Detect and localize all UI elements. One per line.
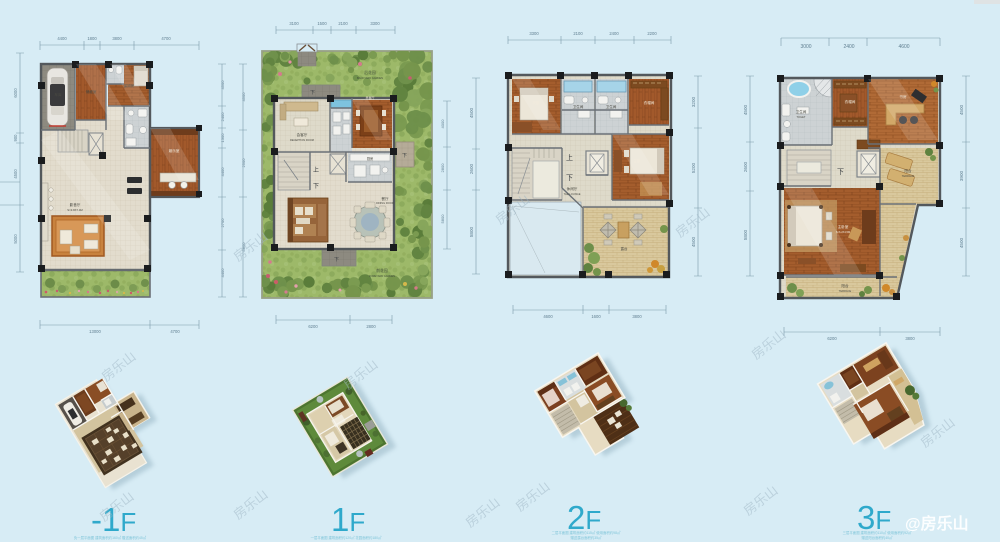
svg-text:4500: 4500 <box>469 107 474 118</box>
svg-text:5800: 5800 <box>469 226 474 237</box>
svg-text:900: 900 <box>13 134 18 142</box>
svg-text:4600: 4600 <box>543 314 553 319</box>
svg-text:4500: 4500 <box>691 236 696 247</box>
svg-text:上: 上 <box>313 166 319 174</box>
svg-text:下: 下 <box>334 257 339 263</box>
svg-text:3900: 3900 <box>959 170 964 181</box>
svg-text:1800: 1800 <box>87 36 97 41</box>
svg-text:下: 下 <box>313 183 319 190</box>
svg-text:3800: 3800 <box>905 336 915 341</box>
svg-text:4500: 4500 <box>220 80 225 90</box>
svg-text:主卧室: 主卧室 <box>838 224 849 229</box>
svg-text:5800: 5800 <box>440 214 445 224</box>
svg-text:3300: 3300 <box>529 31 539 36</box>
svg-text:下: 下 <box>837 168 844 176</box>
svg-text:1F: 1F <box>331 501 365 538</box>
svg-text:2200: 2200 <box>647 31 657 36</box>
svg-text:2400: 2400 <box>220 112 225 122</box>
svg-text:13000: 13000 <box>89 329 101 334</box>
svg-text:TERRACE: TERRACE <box>839 289 852 293</box>
svg-text:二层平面图 建筑面积约115㎡ 使用面积约98㎡: 二层平面图 建筑面积约115㎡ 使用面积约98㎡ <box>552 530 621 535</box>
svg-text:4000: 4000 <box>440 119 445 129</box>
svg-text:DINING ROOM: DINING ROOM <box>376 201 394 205</box>
svg-text:1500: 1500 <box>317 21 327 26</box>
svg-text:2800: 2800 <box>440 163 445 173</box>
svg-text:3300: 3300 <box>370 21 380 26</box>
svg-text:卫生间: 卫生间 <box>796 109 807 114</box>
svg-text:TERRACE: TERRACE <box>902 174 915 178</box>
svg-text:阳台: 阳台 <box>841 283 849 288</box>
svg-text:3800: 3800 <box>632 314 642 319</box>
svg-text:负一层平面图 建筑面积约160㎡ 赠送面积约45㎡: 负一层平面图 建筑面积约160㎡ 赠送面积约45㎡ <box>74 535 147 540</box>
svg-text:FOREYARD GARDEN: FOREYARD GARDEN <box>369 274 395 278</box>
svg-text:@房乐山: @房乐山 <box>905 514 969 533</box>
svg-text:THE LOUNGE: THE LOUNGE <box>564 192 581 196</box>
svg-text:BACKYARD GARDEN: BACKYARD GARDEN <box>357 76 383 80</box>
svg-text:5200: 5200 <box>691 162 696 173</box>
svg-text:车库: 车库 <box>54 92 62 97</box>
svg-text:前花园: 前花园 <box>376 268 388 273</box>
svg-text:TOILET: TOILET <box>796 115 805 119</box>
svg-text:2600: 2600 <box>469 163 474 174</box>
svg-text:6200: 6200 <box>827 336 837 341</box>
svg-text:2100: 2100 <box>338 21 348 26</box>
svg-text:2700: 2700 <box>220 218 225 228</box>
svg-text:6200: 6200 <box>308 324 318 329</box>
svg-text:4400: 4400 <box>220 268 225 278</box>
svg-text:4500: 4500 <box>241 92 246 102</box>
svg-text:4700: 4700 <box>170 329 180 334</box>
svg-text:3100: 3100 <box>289 21 299 26</box>
svg-text:上: 上 <box>566 153 573 162</box>
svg-text:3800: 3800 <box>112 36 122 41</box>
svg-text:下: 下 <box>310 90 315 96</box>
svg-text:露台: 露台 <box>621 246 628 251</box>
svg-text:三层平面图 建筑面积约110㎡ 使用面积约92㎡: 三层平面图 建筑面积约110㎡ 使用面积约92㎡ <box>843 530 912 535</box>
svg-text:1600: 1600 <box>591 314 601 319</box>
svg-text:3000: 3000 <box>800 44 811 50</box>
svg-text:赠送阳台面积约40㎡: 赠送阳台面积约40㎡ <box>862 535 894 540</box>
svg-text:3200: 3200 <box>691 96 696 107</box>
svg-text:5000: 5000 <box>13 234 18 244</box>
svg-text:卫生间: 卫生间 <box>606 104 617 109</box>
svg-text:RECEPTION ROOM: RECEPTION ROOM <box>290 138 314 142</box>
svg-text:4500: 4500 <box>743 104 748 115</box>
svg-text:4400: 4400 <box>57 36 67 41</box>
svg-text:休闲厅: 休闲厅 <box>567 186 578 191</box>
svg-text:2500: 2500 <box>241 158 246 168</box>
svg-text:2400: 2400 <box>843 44 854 50</box>
svg-text:6000: 6000 <box>13 88 18 98</box>
svg-text:阳台: 阳台 <box>904 168 912 173</box>
svg-text:2400: 2400 <box>609 31 619 36</box>
svg-text:卫生间: 卫生间 <box>573 104 584 109</box>
svg-text:S=3.8X7.4M: S=3.8X7.4M <box>67 208 83 212</box>
svg-text:4400: 4400 <box>220 167 225 177</box>
svg-text:4700: 4700 <box>161 36 171 41</box>
svg-text:影音厅: 影音厅 <box>70 202 81 207</box>
svg-text:2800: 2800 <box>366 324 376 329</box>
svg-text:衣帽间: 衣帽间 <box>845 99 856 104</box>
svg-text:下: 下 <box>402 153 407 159</box>
svg-text:2100: 2100 <box>573 31 583 36</box>
svg-text:衣帽间: 衣帽间 <box>644 100 655 105</box>
svg-text:4500: 4500 <box>959 237 964 248</box>
svg-text:2600: 2600 <box>743 161 748 172</box>
svg-text:一层平面图 建筑面积约120㎡ 花园面积约180㎡: 一层平面图 建筑面积约120㎡ 花园面积约180㎡ <box>311 535 382 540</box>
svg-text:早餐厅: 早餐厅 <box>365 95 374 100</box>
svg-text:餐厅: 餐厅 <box>381 196 389 201</box>
svg-text:5800: 5800 <box>743 229 748 240</box>
svg-text:会客厅: 会客厅 <box>297 132 308 137</box>
svg-text:1300: 1300 <box>220 133 225 143</box>
svg-text:4600: 4600 <box>898 44 909 50</box>
svg-text:4500: 4500 <box>13 169 18 179</box>
svg-text:后花园: 后花园 <box>364 70 376 75</box>
svg-text:下: 下 <box>566 174 573 182</box>
svg-text:4500: 4500 <box>959 104 964 115</box>
svg-text:赠送露台面积约35㎡: 赠送露台面积约35㎡ <box>571 535 603 540</box>
svg-text:厨房: 厨房 <box>367 156 373 161</box>
